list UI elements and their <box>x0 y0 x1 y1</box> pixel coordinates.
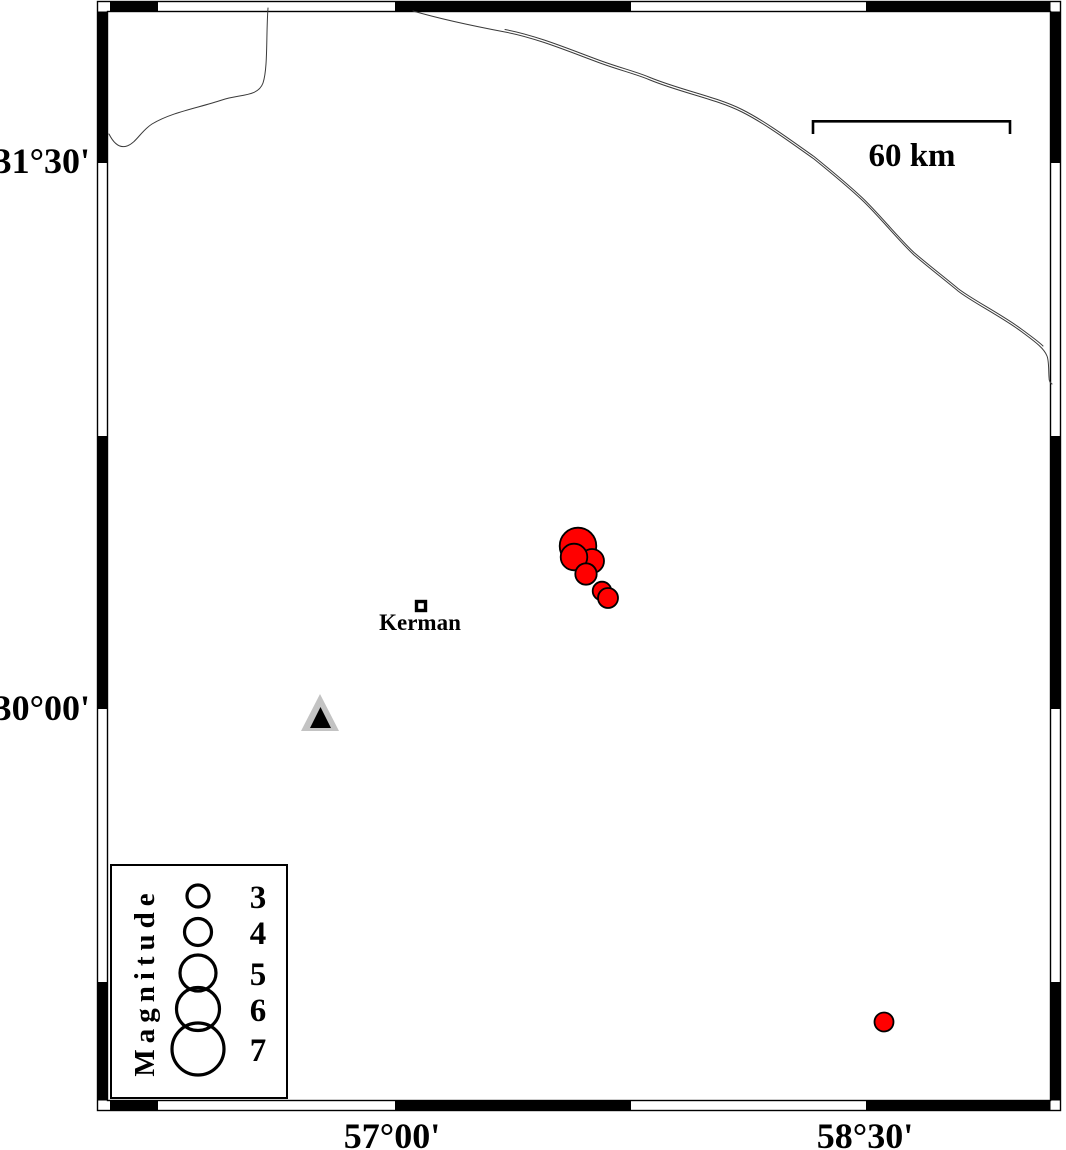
station-triangle <box>301 694 339 731</box>
scale-bar-bracket <box>813 121 1010 134</box>
scale-bar-label: 60 km <box>868 138 955 174</box>
scale-bar: 60 km <box>813 121 1010 174</box>
legend-magnitude-label: 7 <box>250 1033 267 1069</box>
river-lines <box>109 8 1052 384</box>
legend-title: Magnitude <box>129 887 161 1076</box>
frame-tick-segment <box>1051 436 1061 709</box>
frame-tick-segment <box>98 436 108 709</box>
axis-label-left-bottom: 30°00' <box>0 688 90 728</box>
legend-magnitude-label: 6 <box>250 993 267 1029</box>
frame-tick-segment <box>1051 982 1061 1101</box>
axis-label-left-top: 31°30' <box>0 141 90 181</box>
river-tributary <box>109 8 268 147</box>
frame-tick-segment <box>98 982 108 1101</box>
frame-tick-segment <box>1051 12 1061 164</box>
axis-label-bottom-left: 57°00' <box>344 1116 440 1150</box>
legend-magnitude-label: 5 <box>250 957 267 993</box>
river-main-second-bank <box>505 30 1043 347</box>
frame-tick-segment <box>866 1101 1051 1111</box>
legend-magnitude-label: 3 <box>250 880 267 916</box>
frame-tick-segment <box>98 12 108 164</box>
city-kerman: Kerman <box>379 602 461 636</box>
earthquake-marker <box>575 563 596 584</box>
magnitude-legend: Magnitude 34567 <box>111 865 287 1098</box>
frame-tick-segment <box>110 1101 158 1111</box>
frame-tick-segment <box>395 2 631 12</box>
frame-tick-segment <box>395 1101 631 1111</box>
frame-tick-segment <box>866 2 1051 12</box>
river-main <box>413 11 1052 384</box>
earthquake-markers <box>560 528 894 1032</box>
frame-tick-segment <box>110 2 158 12</box>
seismicity-map: 60 km Kerman Magnitude 34567 31°30' 30°0… <box>0 0 1066 1150</box>
earthquake-marker <box>875 1013 894 1032</box>
city-label: Kerman <box>379 610 461 635</box>
earthquake-marker <box>598 588 618 608</box>
axis-label-bottom-right: 58°30' <box>817 1116 913 1150</box>
map-page: 60 km Kerman Magnitude 34567 31°30' 30°0… <box>0 0 1066 1150</box>
legend-magnitude-label: 4 <box>250 916 267 952</box>
